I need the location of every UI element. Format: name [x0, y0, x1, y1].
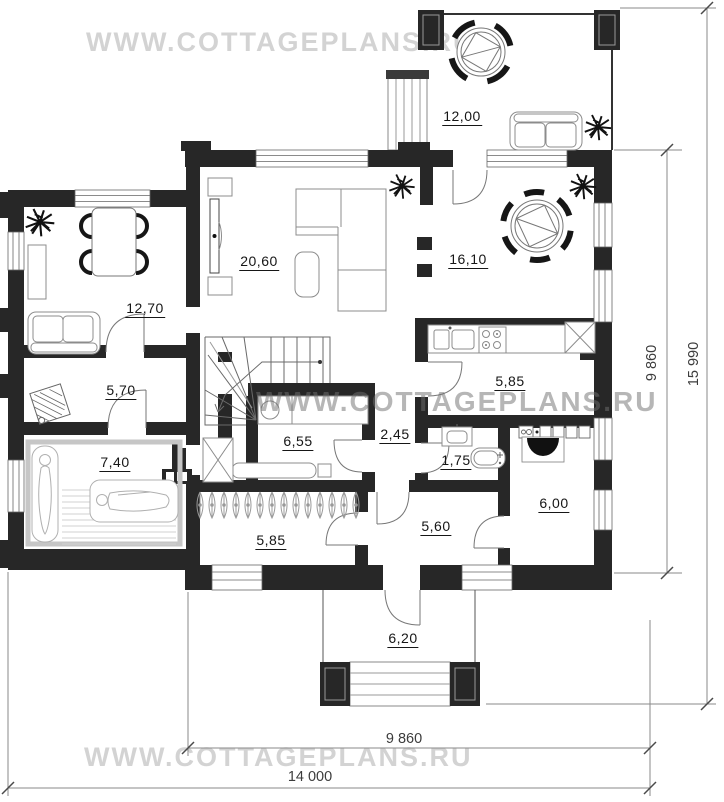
- sauna-lounger: [32, 446, 58, 542]
- column: [418, 10, 444, 50]
- room-label-terrace: 12,00: [442, 108, 482, 124]
- room-label-dining-room: 16,10: [448, 251, 488, 267]
- room-area-text: 6,55: [282, 433, 313, 451]
- room-area-text: 16,10: [448, 251, 488, 269]
- floor-plan-drawing: [0, 0, 724, 802]
- room-label-lounge: 12,70: [125, 300, 165, 316]
- shower-pad: [30, 384, 70, 424]
- room-area-text: 5,85: [255, 532, 286, 550]
- bathtub: [471, 448, 505, 468]
- column: [594, 10, 620, 50]
- room-area-text: 1,75: [440, 452, 471, 470]
- room-label-relax-room: 6,55: [282, 433, 313, 449]
- washbasin: [442, 424, 472, 446]
- plant-icon: [570, 174, 596, 199]
- room-area-text: 7,40: [99, 454, 130, 472]
- room-label-bathroom: 1,75: [440, 452, 471, 468]
- plant-icon: [26, 209, 55, 236]
- room-label-washroom: 5,70: [105, 382, 136, 398]
- porch-structure: [320, 590, 480, 706]
- fireplace: [522, 437, 564, 462]
- room-area-text: 6,00: [538, 495, 569, 513]
- room-label-entrance-hall: 5,85: [255, 532, 286, 548]
- sauna-lounger: [90, 480, 178, 522]
- wardrobe: [203, 438, 233, 482]
- kitchen-counter: [428, 322, 595, 353]
- dimension-height-outer: 15 990: [686, 342, 702, 386]
- room-area-text: 12,70: [125, 300, 165, 318]
- lounge-table: [81, 208, 147, 276]
- room-area-text: 2,45: [379, 426, 410, 444]
- coat-hangers: [197, 492, 359, 518]
- room-area-text: 6,20: [387, 630, 418, 648]
- terrace-table: [440, 11, 521, 92]
- plant-icon: [585, 115, 611, 140]
- sink: [434, 330, 449, 349]
- dimension-width-outer: 14 000: [288, 769, 332, 785]
- dimension-width-inner: 9 860: [386, 731, 422, 747]
- room-label-hallway: 2,45: [379, 426, 410, 442]
- room-label-living-room: 20,60: [239, 253, 279, 269]
- dimension-height-inner: 9 860: [644, 345, 660, 381]
- coffee-table: [295, 252, 319, 297]
- dining-table: [499, 188, 576, 265]
- tv-unit: [208, 178, 232, 295]
- room-area-text: 5,70: [105, 382, 136, 400]
- floor-plan-page: WWW.COTTAGEPLANS.RU WWW.COTTAGEPLANS.RU: [0, 0, 724, 802]
- room-label-boiler-room: 6,00: [538, 495, 569, 511]
- massage-bench: [232, 463, 316, 478]
- chair: [81, 215, 92, 273]
- room-area-text: 20,60: [239, 253, 279, 271]
- stove: [479, 327, 506, 353]
- room-area-text: 12,00: [442, 108, 482, 126]
- chair: [136, 215, 147, 273]
- room-label-sauna: 7,40: [99, 454, 130, 470]
- room-label-vestibule: 5,60: [420, 518, 451, 534]
- sink: [452, 330, 474, 349]
- room-area-text: 5,60: [420, 518, 451, 536]
- fridge: [565, 322, 595, 353]
- room-label-porch: 6,20: [387, 630, 418, 646]
- lounge-cabinet: [28, 245, 46, 299]
- boiler-equipment: [519, 426, 590, 462]
- terrace-sofa: [510, 112, 582, 150]
- room-area-text: 5,85: [494, 373, 525, 391]
- room-label-kitchen: 5,85: [494, 373, 525, 389]
- lounge-sofa: [28, 312, 100, 354]
- steps-landing: [386, 70, 429, 79]
- plant-icon: [389, 175, 414, 199]
- terrace-steps: [388, 77, 427, 150]
